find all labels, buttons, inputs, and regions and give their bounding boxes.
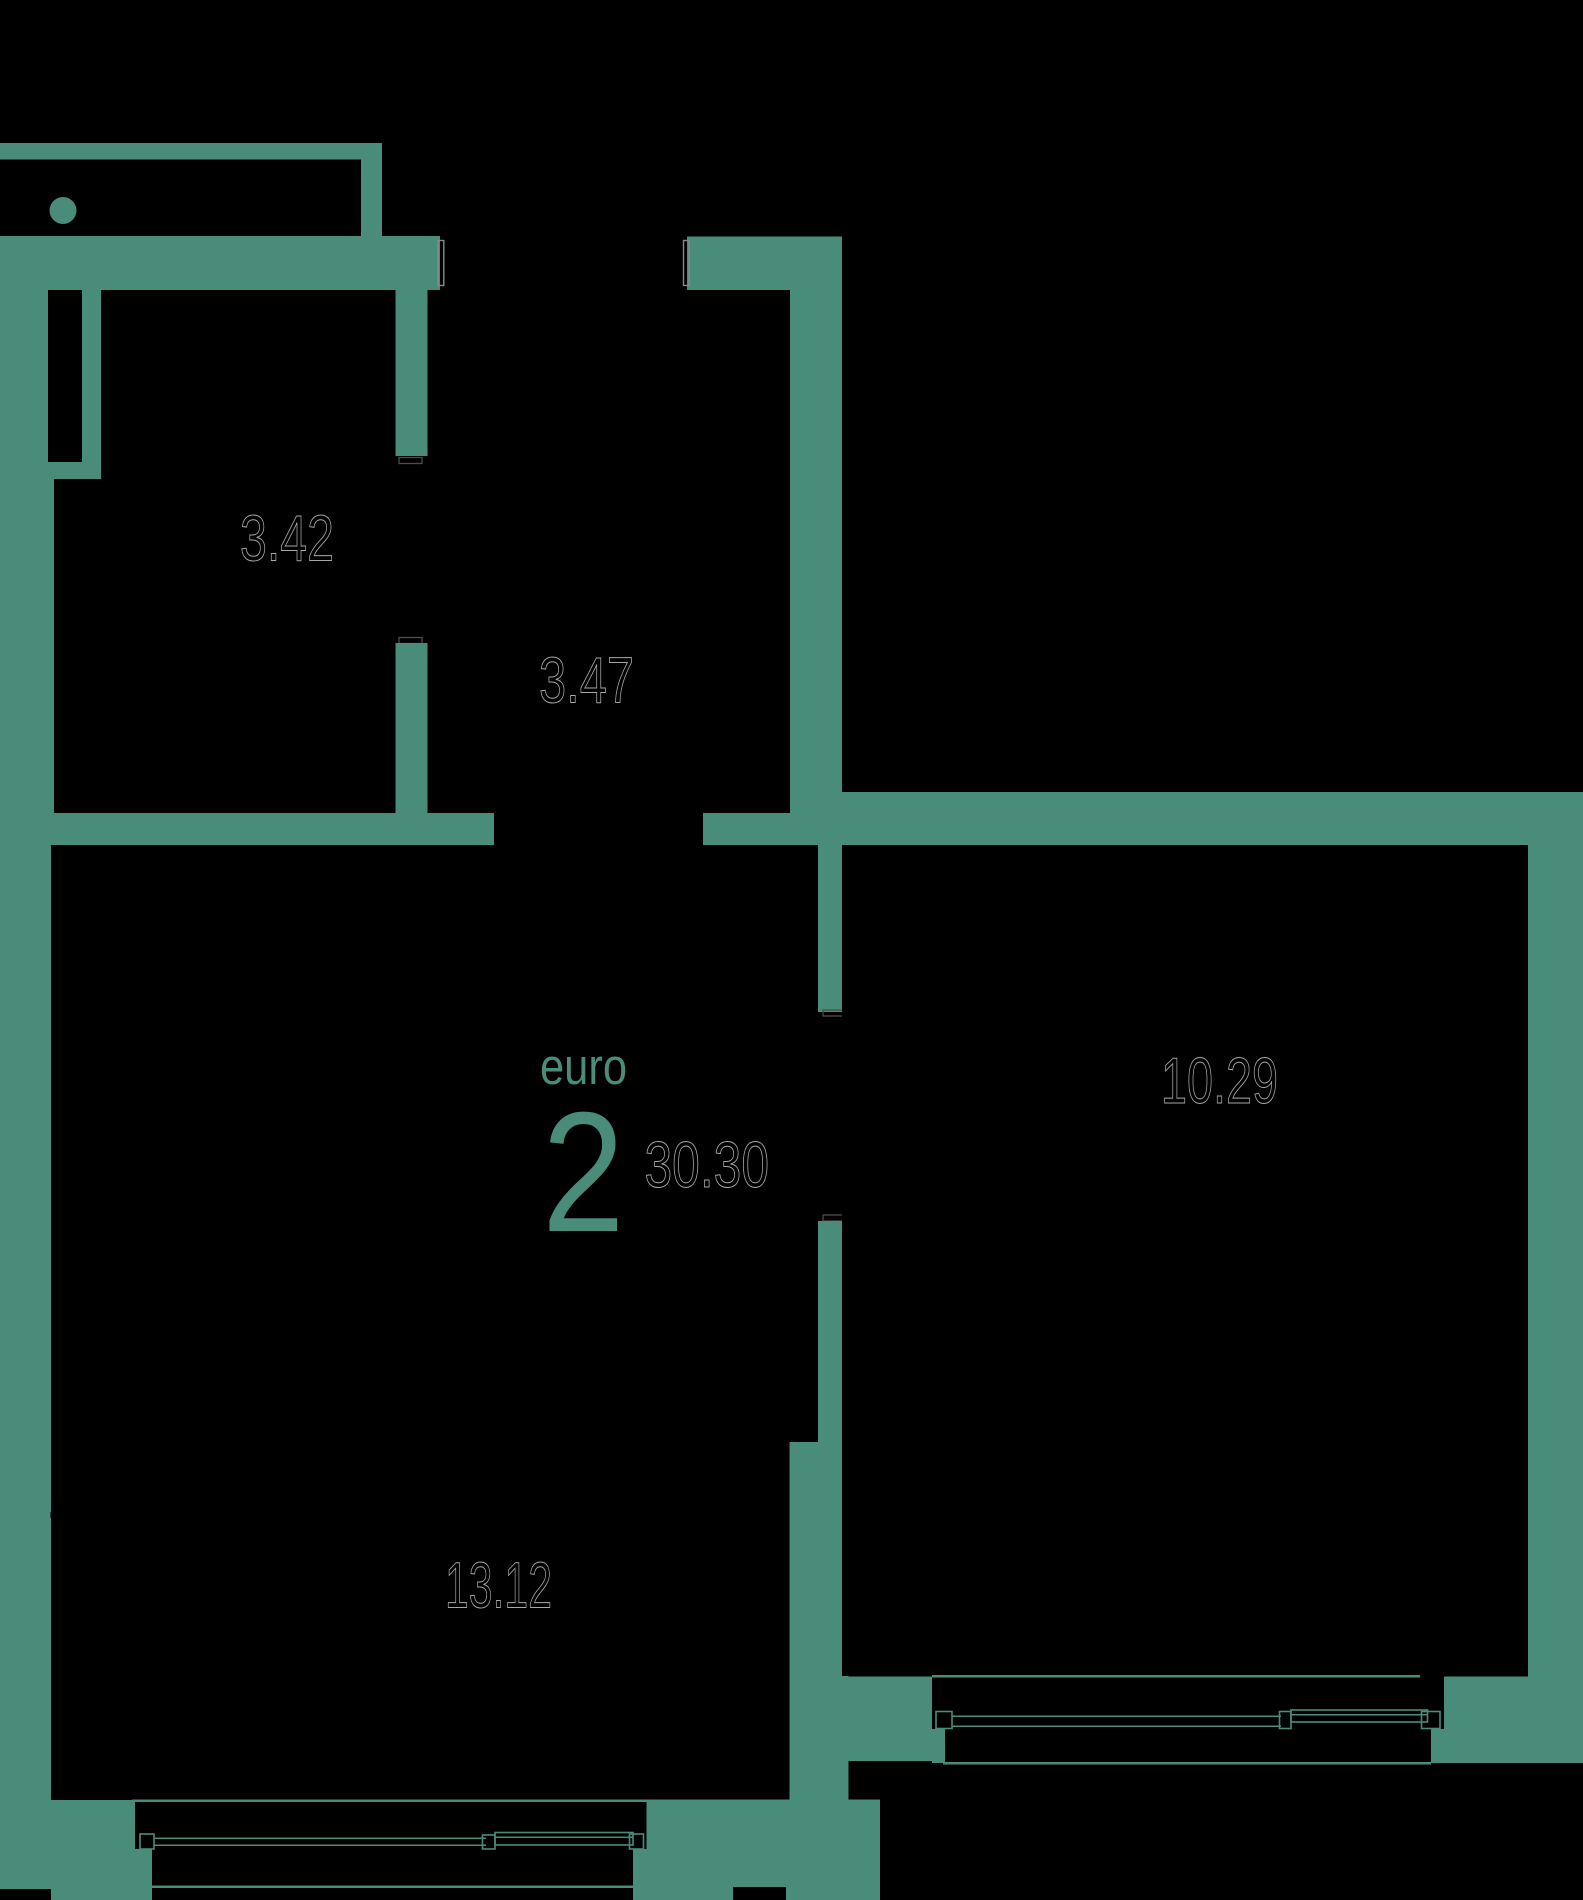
svg-text:3.47: 3.47: [539, 644, 634, 717]
svg-text:2: 2: [542, 1076, 625, 1267]
svg-text:3.42: 3.42: [240, 502, 334, 575]
svg-text:30.30: 30.30: [645, 1128, 770, 1201]
svg-text:13.12: 13.12: [445, 1549, 552, 1622]
svg-text:10.29: 10.29: [1161, 1044, 1278, 1117]
